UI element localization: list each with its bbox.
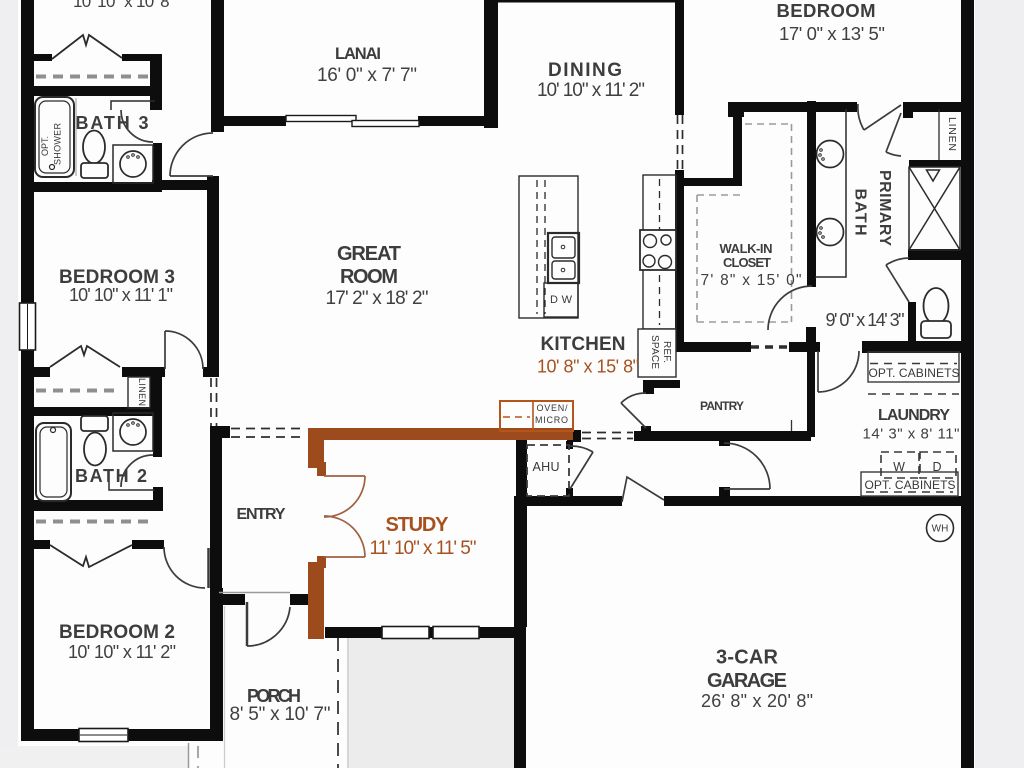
svg-text:10' 10" x 11' 2": 10' 10" x 11' 2" [68,642,176,662]
svg-text:WH: WH [932,524,949,535]
svg-text:KITCHEN: KITCHEN [541,334,626,355]
svg-text:WALK-IN: WALK-IN [720,241,773,256]
svg-text:LINEN: LINEN [137,378,147,406]
svg-text:BATH 3: BATH 3 [76,113,149,133]
svg-text:OPT. CABINETS: OPT. CABINETS [865,478,956,492]
svg-text:SPACE: SPACE [649,335,660,369]
svg-text:MICRO: MICRO [535,415,568,425]
svg-text:LANAI: LANAI [335,45,381,63]
svg-text:7' 8" x 15' 0": 7' 8" x 15' 0" [701,272,802,289]
svg-text:17' 2" x 18' 2": 17' 2" x 18' 2" [326,288,429,309]
svg-text:9' 0" x 14' 3": 9' 0" x 14' 3" [826,310,905,330]
svg-text:PORCH: PORCH [247,686,301,706]
svg-text:OVEN/: OVEN/ [537,403,568,413]
svg-text:17' 0" x 13' 5": 17' 0" x 13' 5" [779,23,885,44]
svg-text:OPT.: OPT. [40,136,50,156]
svg-text:DINING: DINING [548,60,622,81]
svg-text:SHOWER: SHOWER [53,123,63,166]
svg-text:PRIMARY: PRIMARY [876,170,893,246]
svg-text:10' 10" x 11' 2": 10' 10" x 11' 2" [537,80,645,101]
svg-text:ROOM: ROOM [340,266,398,288]
svg-text:BATH: BATH [852,189,869,236]
svg-text:STUDY: STUDY [386,514,450,536]
svg-text:D: D [932,460,941,474]
svg-text:GREAT: GREAT [337,243,401,265]
svg-text:BEDROOM 2: BEDROOM 2 [59,622,175,643]
svg-text:LAUNDRY: LAUNDRY [878,407,950,424]
svg-text:REF.: REF. [661,341,672,363]
svg-text:3-CAR: 3-CAR [716,647,779,669]
svg-text:GARAGE: GARAGE [707,670,787,692]
svg-text:BEDROOM: BEDROOM [777,0,876,21]
svg-text:OPT. CABINETS: OPT. CABINETS [869,366,960,380]
svg-text:DW: DW [550,294,573,306]
svg-text:10' 8" x 15' 8": 10' 8" x 15' 8" [537,357,639,377]
svg-text:ENTRY: ENTRY [237,506,286,523]
svg-text:26' 8" x 20' 8": 26' 8" x 20' 8" [701,691,813,711]
svg-text:10' 10" x 11' 1": 10' 10" x 11' 1" [69,285,173,305]
svg-text:LINEN: LINEN [946,117,958,151]
svg-text:10' 10" x 10' 8": 10' 10" x 10' 8" [73,0,175,11]
svg-text:11' 10" x 11' 5": 11' 10" x 11' 5" [370,538,477,559]
svg-text:BATH 2: BATH 2 [75,466,147,486]
svg-text:14' 3" x 8' 11": 14' 3" x 8' 11" [863,426,960,443]
svg-text:PANTRY: PANTRY [700,399,744,413]
svg-text:CLOSET: CLOSET [723,255,771,270]
svg-text:16' 0" x 7' 7": 16' 0" x 7' 7" [317,65,417,86]
svg-text:8' 5" x 10' 7": 8' 5" x 10' 7" [230,704,331,725]
svg-text:AHU: AHU [533,460,560,474]
svg-text:W: W [893,460,905,474]
